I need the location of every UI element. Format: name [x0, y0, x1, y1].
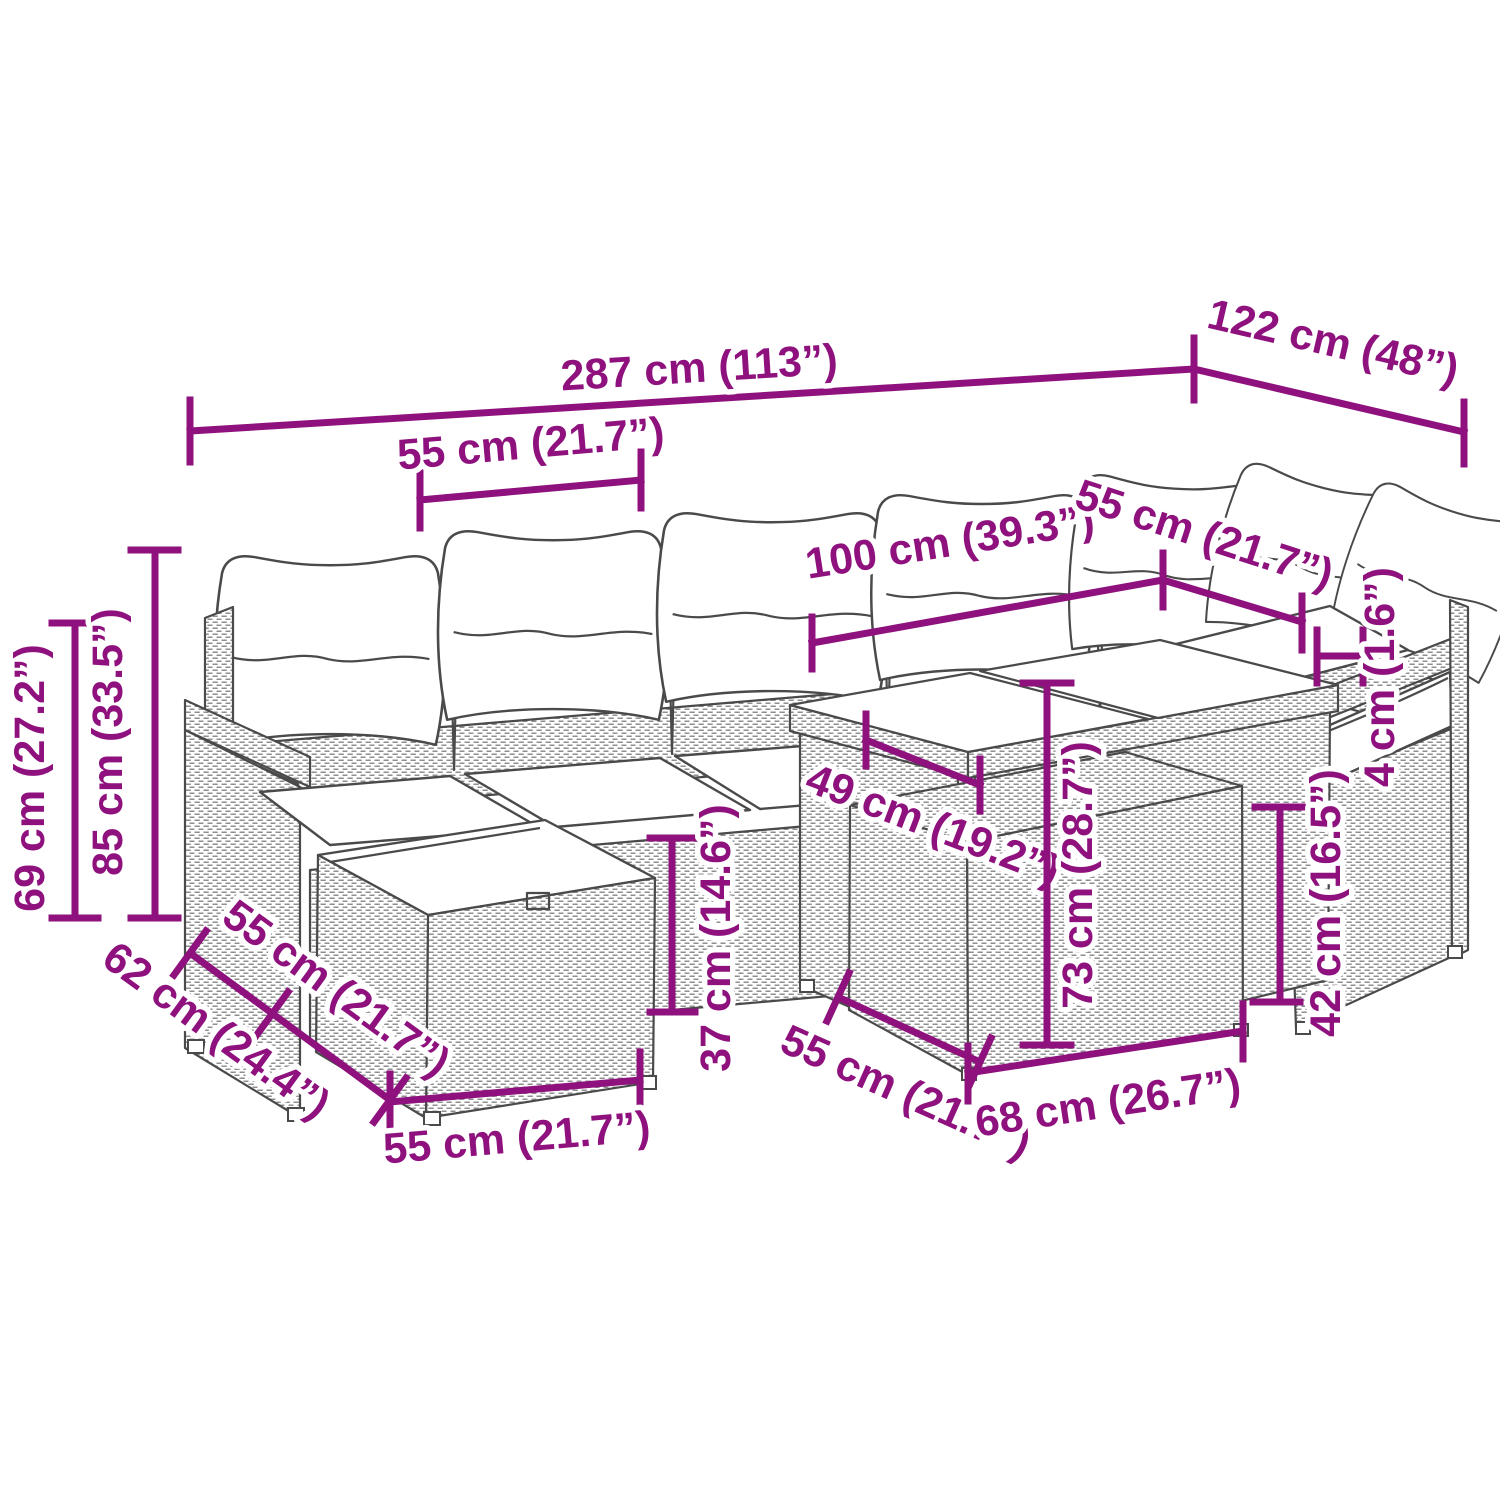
dim-frame-seat-height-label: 37 cm (14.6”): [692, 804, 740, 1072]
diagram-canvas: 287 cm (113”) 122 cm (48”) 55 cm (21.7”)…: [0, 0, 1500, 1500]
dim-armrest-height-label: 42 cm (16.5”): [1302, 769, 1350, 1037]
dim-backrest-height-label: 69 cm (27.2”): [6, 644, 54, 912]
back-pillow: [438, 531, 668, 720]
dim-overall-height-label: 85 cm (33.5”): [84, 608, 132, 876]
back-pillow: [215, 556, 445, 745]
dim-overall-height-line: [131, 550, 178, 918]
dim-glass-thickness-label: 4 cm (1.6”): [1356, 567, 1404, 787]
product-dimension-diagram: 287 cm (113”) 122 cm (48”) 55 cm (21.7”)…: [0, 0, 1500, 1500]
ottoman: [316, 820, 655, 1118]
dim-storage-module-width-label: 68 cm (26.7”): [972, 1060, 1244, 1147]
dim-table-height-label: 73 cm (28.7”): [1054, 741, 1102, 1009]
